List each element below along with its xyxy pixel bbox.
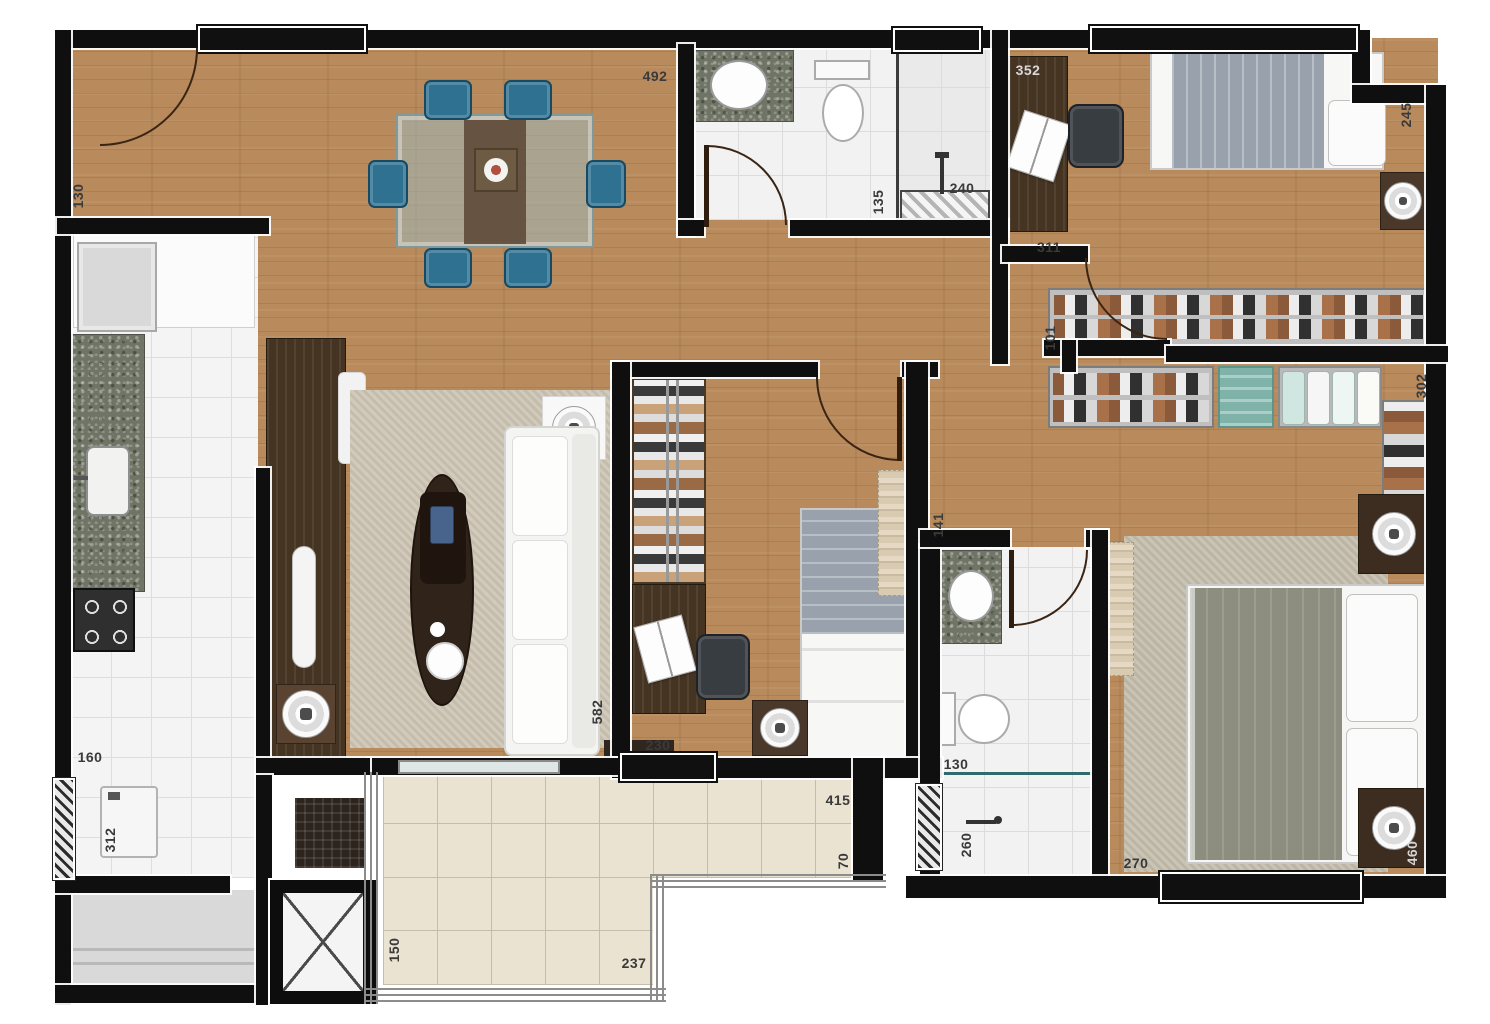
dim-label-130: 130 (70, 184, 86, 209)
dim-label-135: 135 (870, 190, 886, 215)
apartment-floor-plan: 1304921352403522453111013021415822301603… (0, 0, 1490, 1024)
dim-label-260: 260 (958, 833, 974, 858)
dim-labels-layer: 1304921352403522453111013021415822301603… (0, 0, 1490, 1024)
dim-label-141: 141 (930, 513, 946, 538)
dim-label-582: 582 (589, 700, 605, 725)
dim-label-312: 312 (102, 828, 118, 853)
dim-label-492: 492 (643, 68, 668, 84)
dim-label-245: 245 (1398, 103, 1414, 128)
dim-label-101: 101 (1042, 326, 1058, 351)
dim-label-160: 160 (78, 749, 103, 765)
dim-label-311: 311 (1037, 239, 1061, 255)
dim-label-302: 302 (1413, 374, 1429, 399)
dim-label-230: 230 (646, 737, 671, 753)
dim-label-70: 70 (835, 853, 851, 870)
dim-label-270: 270 (1124, 855, 1149, 871)
dim-label-150: 150 (386, 938, 402, 963)
dim-label-460: 460 (1404, 841, 1420, 866)
dim-label-352: 352 (1016, 62, 1041, 78)
dim-label-130: 130 (944, 756, 969, 772)
dim-label-237: 237 (622, 955, 647, 971)
dim-label-240: 240 (950, 180, 975, 196)
dim-label-415: 415 (826, 792, 851, 808)
